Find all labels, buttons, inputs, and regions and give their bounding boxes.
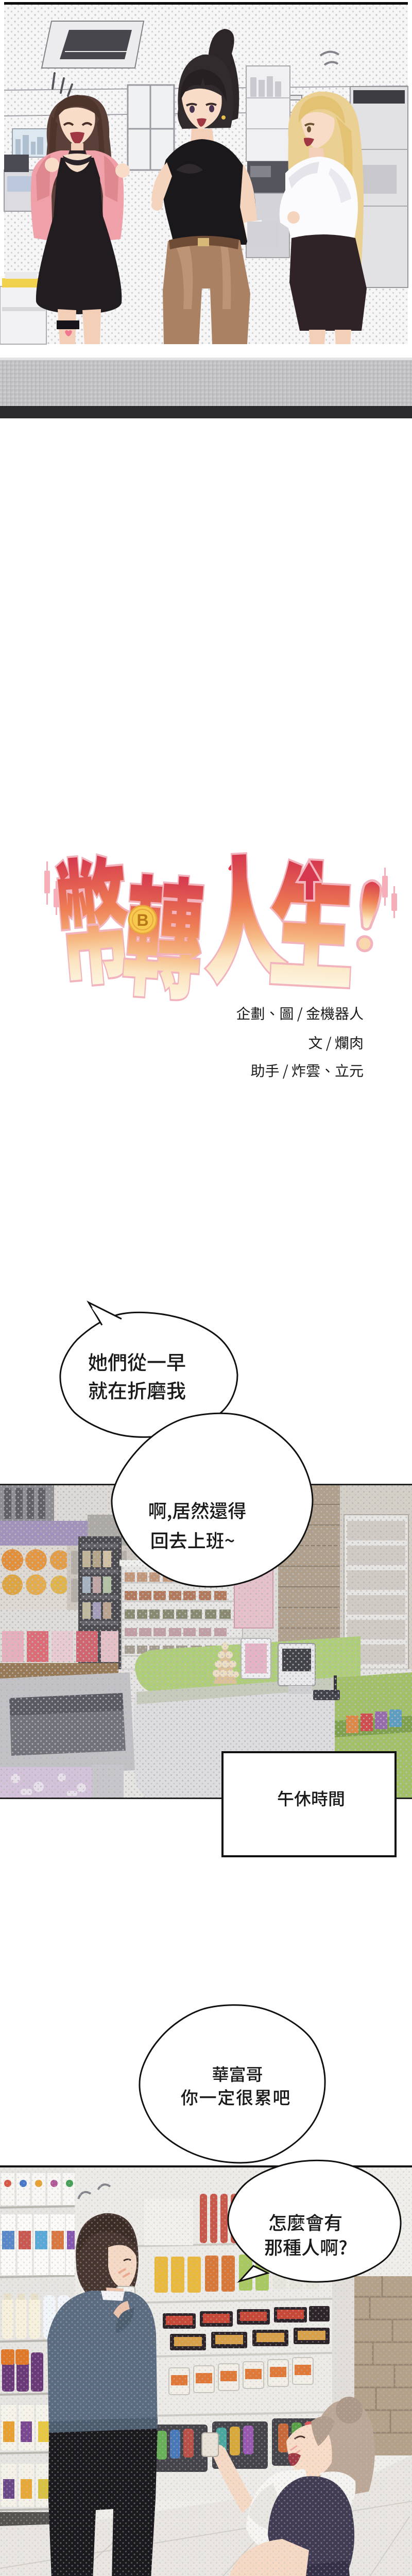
svg-text:B: B (136, 911, 148, 929)
